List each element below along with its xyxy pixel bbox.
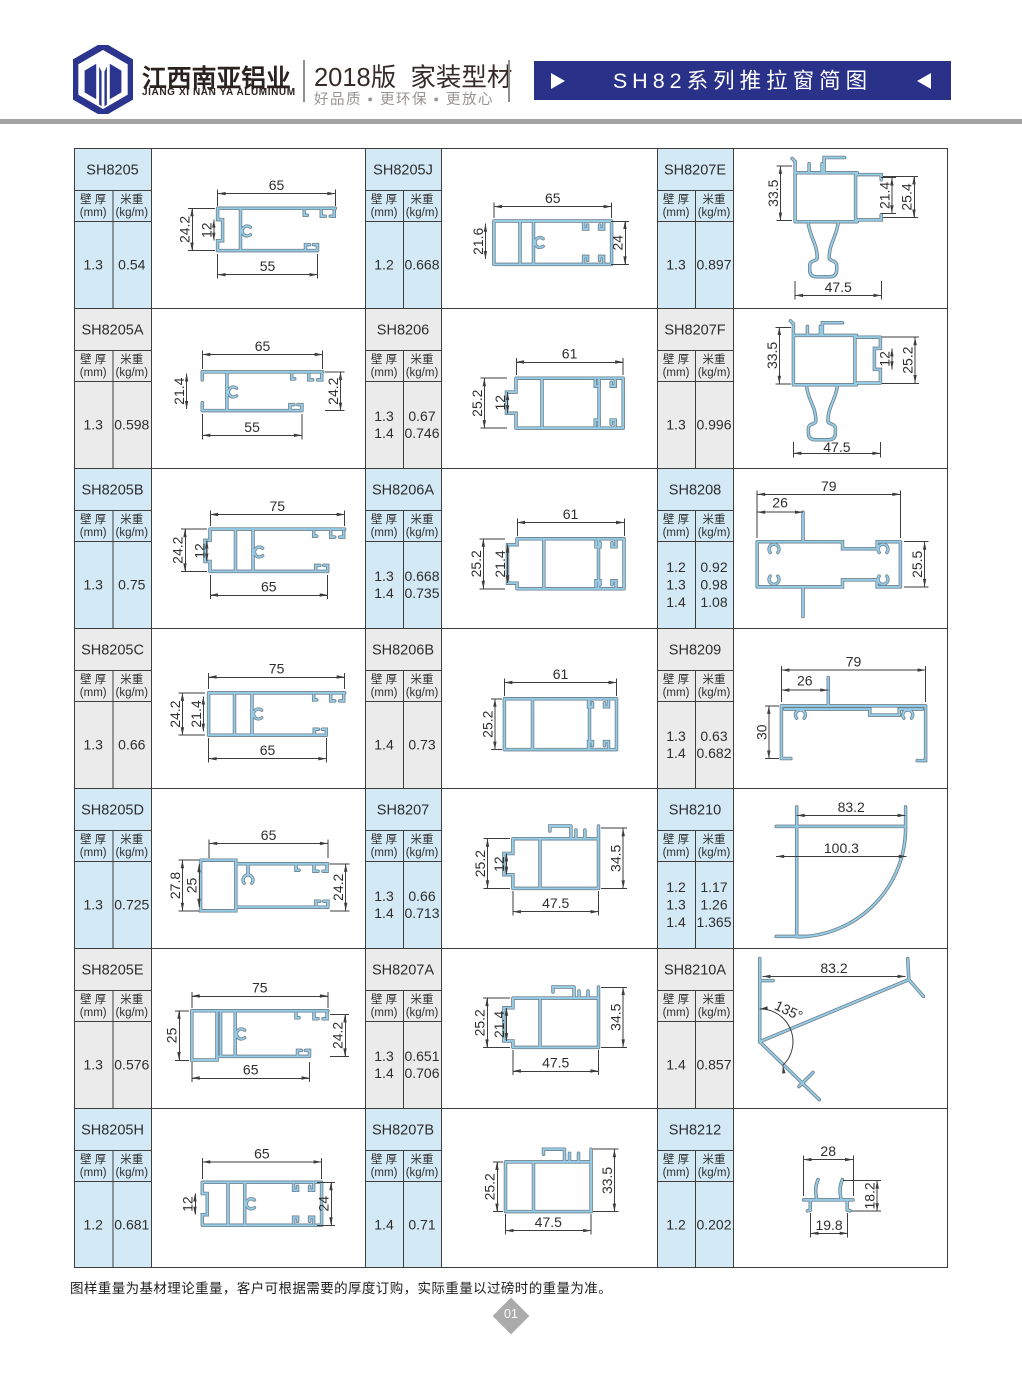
svg-text:12: 12 xyxy=(491,856,507,872)
svg-text:21.4: 21.4 xyxy=(188,700,204,727)
svg-text:25.2: 25.2 xyxy=(900,346,916,373)
svg-text:1.3: 1.3 xyxy=(83,1057,103,1073)
svg-text:0.71: 0.71 xyxy=(408,1217,435,1233)
svg-text:壁 厚: 壁 厚 xyxy=(663,672,689,686)
svg-text:33.5: 33.5 xyxy=(765,179,781,206)
svg-text:1.3: 1.3 xyxy=(374,1048,394,1064)
svg-text:1.2: 1.2 xyxy=(666,879,686,895)
svg-text:0.75: 0.75 xyxy=(118,577,145,593)
svg-text:25.2: 25.2 xyxy=(472,1009,488,1036)
svg-text:21.4: 21.4 xyxy=(492,550,508,577)
svg-text:0.725: 0.725 xyxy=(114,897,149,913)
svg-text:SH8209: SH8209 xyxy=(669,643,721,659)
svg-text:79: 79 xyxy=(846,654,862,670)
svg-text:(mm): (mm) xyxy=(663,687,690,699)
svg-text:1.2: 1.2 xyxy=(666,1217,686,1233)
svg-text:SH8205E: SH8205E xyxy=(81,963,143,979)
svg-text:1.3: 1.3 xyxy=(83,577,103,593)
svg-text:1.4: 1.4 xyxy=(666,1057,686,1073)
svg-text:0.98: 0.98 xyxy=(700,577,727,593)
svg-text:65: 65 xyxy=(261,827,277,843)
svg-text:米重: 米重 xyxy=(411,992,434,1006)
svg-text:1.2: 1.2 xyxy=(666,559,686,575)
svg-text:SH8205J: SH8205J xyxy=(373,163,433,179)
svg-text:25.4: 25.4 xyxy=(899,183,915,210)
svg-text:61: 61 xyxy=(563,506,579,522)
svg-text:0.54: 0.54 xyxy=(118,257,145,273)
svg-text:(mm): (mm) xyxy=(80,1167,107,1179)
svg-text:(kg/m): (kg/m) xyxy=(116,847,149,859)
svg-text:SH8206A: SH8206A xyxy=(372,483,434,499)
svg-text:(kg/m): (kg/m) xyxy=(406,527,439,539)
svg-text:米重: 米重 xyxy=(411,1152,434,1166)
svg-text:壁 厚: 壁 厚 xyxy=(371,832,397,846)
svg-text:0.73: 0.73 xyxy=(408,737,435,753)
svg-text:0.66: 0.66 xyxy=(118,737,145,753)
svg-text:(mm): (mm) xyxy=(371,687,398,699)
svg-text:65: 65 xyxy=(255,338,271,354)
svg-text:1.3: 1.3 xyxy=(666,577,686,593)
svg-text:米重: 米重 xyxy=(120,992,143,1006)
svg-text:SH8207B: SH8207B xyxy=(372,1123,434,1139)
svg-text:壁 厚: 壁 厚 xyxy=(371,992,397,1006)
svg-text:米重: 米重 xyxy=(411,832,434,846)
svg-text:米重: 米重 xyxy=(703,192,726,206)
svg-text:21.6: 21.6 xyxy=(470,227,486,254)
svg-text:壁 厚: 壁 厚 xyxy=(80,832,106,846)
svg-text:25.2: 25.2 xyxy=(482,1173,498,1200)
svg-text:米重: 米重 xyxy=(411,192,434,206)
svg-text:34.5: 34.5 xyxy=(608,1003,624,1030)
svg-text:(kg/m): (kg/m) xyxy=(406,1167,439,1179)
svg-text:47.5: 47.5 xyxy=(823,439,850,455)
svg-text:75: 75 xyxy=(270,498,286,514)
svg-text:(kg/m): (kg/m) xyxy=(116,367,149,379)
svg-text:1.17: 1.17 xyxy=(700,879,727,895)
svg-text:65: 65 xyxy=(254,1145,270,1161)
svg-text:28: 28 xyxy=(820,1143,836,1159)
svg-text:0.681: 0.681 xyxy=(114,1217,149,1233)
svg-text:(kg/m): (kg/m) xyxy=(698,1167,731,1179)
svg-text:壁 厚: 壁 厚 xyxy=(663,352,689,366)
svg-text:壁 厚: 壁 厚 xyxy=(663,512,689,526)
svg-text:1.4: 1.4 xyxy=(666,914,686,930)
svg-text:1.3: 1.3 xyxy=(666,257,686,273)
svg-text:24.2: 24.2 xyxy=(330,873,346,900)
svg-text:1.365: 1.365 xyxy=(696,914,731,930)
svg-text:65: 65 xyxy=(243,1062,259,1078)
svg-text:24: 24 xyxy=(610,235,626,251)
svg-text:75: 75 xyxy=(252,980,268,996)
svg-text:(kg/m): (kg/m) xyxy=(406,367,439,379)
svg-text:壁 厚: 壁 厚 xyxy=(80,192,106,206)
svg-text:24.2: 24.2 xyxy=(170,536,186,563)
svg-text:24.2: 24.2 xyxy=(330,1022,346,1049)
svg-text:0.996: 0.996 xyxy=(696,417,731,433)
svg-text:米重: 米重 xyxy=(120,192,143,206)
svg-text:1.4: 1.4 xyxy=(666,745,686,761)
svg-text:25.2: 25.2 xyxy=(468,550,484,577)
svg-text:壁 厚: 壁 厚 xyxy=(663,192,689,206)
svg-text:米重: 米重 xyxy=(703,672,726,686)
svg-text:12: 12 xyxy=(191,543,207,559)
svg-text:1.4: 1.4 xyxy=(374,585,394,601)
svg-text:135°: 135° xyxy=(772,997,805,1024)
svg-text:47.5: 47.5 xyxy=(825,279,852,295)
svg-text:SH8208: SH8208 xyxy=(669,483,721,499)
svg-text:壁 厚: 壁 厚 xyxy=(663,832,689,846)
svg-text:61: 61 xyxy=(553,666,569,682)
svg-text:米重: 米重 xyxy=(411,672,434,686)
svg-text:SH8205B: SH8205B xyxy=(81,483,143,499)
svg-text:1.3: 1.3 xyxy=(666,728,686,744)
svg-text:26: 26 xyxy=(797,673,813,689)
svg-text:65: 65 xyxy=(545,190,561,206)
svg-text:米重: 米重 xyxy=(411,512,434,526)
svg-text:0.668: 0.668 xyxy=(404,568,439,584)
svg-text:(kg/m): (kg/m) xyxy=(406,1007,439,1019)
svg-text:壁 厚: 壁 厚 xyxy=(371,672,397,686)
svg-text:47.5: 47.5 xyxy=(542,1055,569,1071)
svg-text:(kg/m): (kg/m) xyxy=(116,1167,149,1179)
svg-text:(kg/m): (kg/m) xyxy=(406,847,439,859)
svg-text:(kg/m): (kg/m) xyxy=(698,367,731,379)
svg-text:12: 12 xyxy=(492,395,508,411)
svg-text:(mm): (mm) xyxy=(663,207,690,219)
svg-text:30: 30 xyxy=(753,724,769,740)
svg-text:(mm): (mm) xyxy=(371,1007,398,1019)
svg-text:(mm): (mm) xyxy=(371,527,398,539)
svg-text:壁 厚: 壁 厚 xyxy=(80,992,106,1006)
svg-text:55: 55 xyxy=(260,258,276,274)
svg-text:(mm): (mm) xyxy=(80,527,107,539)
svg-text:12: 12 xyxy=(876,351,892,367)
svg-text:25.5: 25.5 xyxy=(909,550,925,577)
svg-text:12: 12 xyxy=(180,1196,196,1212)
svg-text:1.4: 1.4 xyxy=(374,1217,394,1233)
svg-text:0.713: 0.713 xyxy=(404,905,439,921)
svg-text:26: 26 xyxy=(772,495,788,511)
svg-text:米重: 米重 xyxy=(120,1152,143,1166)
svg-text:壁 厚: 壁 厚 xyxy=(371,352,397,366)
svg-text:100.3: 100.3 xyxy=(824,840,859,856)
svg-text:SH8206: SH8206 xyxy=(377,323,429,339)
svg-text:SH8205C: SH8205C xyxy=(81,643,144,659)
svg-text:1.4: 1.4 xyxy=(374,737,394,753)
svg-text:65: 65 xyxy=(260,742,276,758)
svg-text:0.202: 0.202 xyxy=(696,1217,731,1233)
svg-text:SH8205H: SH8205H xyxy=(81,1123,144,1139)
svg-text:(mm): (mm) xyxy=(371,847,398,859)
svg-text:0.668: 0.668 xyxy=(404,257,439,273)
svg-text:(mm): (mm) xyxy=(80,847,107,859)
svg-text:33.5: 33.5 xyxy=(599,1167,615,1194)
svg-text:1.2: 1.2 xyxy=(83,1217,103,1233)
svg-text:(kg/m): (kg/m) xyxy=(116,1007,149,1019)
svg-text:12: 12 xyxy=(198,222,214,238)
svg-text:0.746: 0.746 xyxy=(404,425,439,441)
svg-text:1.3: 1.3 xyxy=(666,417,686,433)
svg-text:25: 25 xyxy=(164,1027,180,1043)
svg-text:米重: 米重 xyxy=(703,512,726,526)
svg-text:24.2: 24.2 xyxy=(177,216,193,243)
svg-text:0.576: 0.576 xyxy=(114,1057,149,1073)
svg-text:1.26: 1.26 xyxy=(700,897,727,913)
svg-text:SH8210: SH8210 xyxy=(669,803,721,819)
svg-text:34.5: 34.5 xyxy=(608,844,624,871)
svg-text:47.5: 47.5 xyxy=(542,895,569,911)
svg-text:0.651: 0.651 xyxy=(404,1048,439,1064)
svg-text:0.92: 0.92 xyxy=(700,559,727,575)
svg-text:25: 25 xyxy=(184,878,200,894)
svg-text:米重: 米重 xyxy=(120,832,143,846)
svg-text:0.857: 0.857 xyxy=(696,1057,731,1073)
svg-text:米重: 米重 xyxy=(703,352,726,366)
svg-text:(mm): (mm) xyxy=(663,1167,690,1179)
svg-text:(mm): (mm) xyxy=(80,207,107,219)
svg-text:1.4: 1.4 xyxy=(374,1065,394,1081)
svg-text:(kg/m): (kg/m) xyxy=(698,1007,731,1019)
svg-text:SH8205: SH8205 xyxy=(86,163,138,179)
svg-text:25.2: 25.2 xyxy=(469,389,485,416)
svg-text:(kg/m): (kg/m) xyxy=(698,207,731,219)
svg-text:米重: 米重 xyxy=(703,1152,726,1166)
svg-text:米重: 米重 xyxy=(703,992,726,1006)
svg-text:(kg/m): (kg/m) xyxy=(406,207,439,219)
svg-text:24: 24 xyxy=(316,1196,332,1212)
svg-text:18.2: 18.2 xyxy=(862,1182,878,1209)
svg-text:0.897: 0.897 xyxy=(696,257,731,273)
svg-text:83.2: 83.2 xyxy=(820,960,847,976)
svg-text:(kg/m): (kg/m) xyxy=(698,847,731,859)
svg-text:米重: 米重 xyxy=(411,352,434,366)
svg-text:SH8205A: SH8205A xyxy=(81,323,143,339)
svg-text:24.2: 24.2 xyxy=(167,700,183,727)
svg-text:(mm): (mm) xyxy=(663,367,690,379)
svg-text:1.4: 1.4 xyxy=(374,425,394,441)
svg-text:米重: 米重 xyxy=(120,512,143,526)
svg-text:27.8: 27.8 xyxy=(167,872,183,899)
svg-text:SH8207E: SH8207E xyxy=(664,163,726,179)
svg-text:0.67: 0.67 xyxy=(408,408,435,424)
svg-text:1.3: 1.3 xyxy=(666,897,686,913)
svg-text:25.2: 25.2 xyxy=(479,710,495,737)
svg-text:0.735: 0.735 xyxy=(404,585,439,601)
svg-text:1.3: 1.3 xyxy=(83,417,103,433)
svg-text:(kg/m): (kg/m) xyxy=(116,527,149,539)
svg-text:米重: 米重 xyxy=(120,352,143,366)
svg-text:1.3: 1.3 xyxy=(83,897,103,913)
svg-text:19.8: 19.8 xyxy=(815,1217,842,1233)
svg-text:33.5: 33.5 xyxy=(764,342,780,369)
svg-text:24.2: 24.2 xyxy=(325,377,341,404)
svg-text:SH8206B: SH8206B xyxy=(372,643,434,659)
svg-text:0.66: 0.66 xyxy=(408,888,435,904)
svg-text:(kg/m): (kg/m) xyxy=(406,687,439,699)
svg-text:61: 61 xyxy=(562,346,578,362)
svg-text:21.4: 21.4 xyxy=(491,1011,507,1038)
svg-text:1.2: 1.2 xyxy=(374,257,394,273)
svg-text:(kg/m): (kg/m) xyxy=(698,687,731,699)
svg-text:1.3: 1.3 xyxy=(83,737,103,753)
svg-text:SH8205D: SH8205D xyxy=(81,803,144,819)
svg-text:(kg/m): (kg/m) xyxy=(698,527,731,539)
svg-text:1.08: 1.08 xyxy=(700,594,727,610)
svg-text:SH8207F: SH8207F xyxy=(664,323,725,339)
svg-text:(mm): (mm) xyxy=(80,687,107,699)
svg-text:(mm): (mm) xyxy=(663,1007,690,1019)
svg-text:壁 厚: 壁 厚 xyxy=(371,192,397,206)
svg-text:1.3: 1.3 xyxy=(374,888,394,904)
svg-text:壁 厚: 壁 厚 xyxy=(663,992,689,1006)
svg-text:0.598: 0.598 xyxy=(114,417,149,433)
svg-text:79: 79 xyxy=(821,478,837,494)
svg-text:SH8210A: SH8210A xyxy=(664,963,726,979)
svg-text:1.4: 1.4 xyxy=(374,905,394,921)
svg-text:SH8207: SH8207 xyxy=(377,803,429,819)
svg-text:(mm): (mm) xyxy=(371,207,398,219)
svg-text:壁 厚: 壁 厚 xyxy=(80,352,106,366)
svg-text:21.4: 21.4 xyxy=(876,182,892,209)
svg-text:(mm): (mm) xyxy=(663,847,690,859)
svg-text:1.3: 1.3 xyxy=(374,568,394,584)
svg-text:65: 65 xyxy=(261,579,277,595)
svg-text:25.2: 25.2 xyxy=(472,850,488,877)
svg-text:21.4: 21.4 xyxy=(171,377,187,404)
svg-text:(mm): (mm) xyxy=(663,527,690,539)
svg-text:(mm): (mm) xyxy=(371,367,398,379)
svg-text:米重: 米重 xyxy=(120,672,143,686)
svg-text:0.706: 0.706 xyxy=(404,1065,439,1081)
svg-text:壁 厚: 壁 厚 xyxy=(80,512,106,526)
svg-text:壁 厚: 壁 厚 xyxy=(371,1152,397,1166)
svg-text:65: 65 xyxy=(269,177,285,193)
svg-text:47.5: 47.5 xyxy=(535,1214,562,1230)
svg-text:(mm): (mm) xyxy=(371,1167,398,1179)
svg-text:SH8212: SH8212 xyxy=(669,1123,721,1139)
svg-text:75: 75 xyxy=(269,661,285,677)
svg-text:55: 55 xyxy=(244,419,260,435)
svg-text:(kg/m): (kg/m) xyxy=(116,207,149,219)
svg-text:(mm): (mm) xyxy=(80,367,107,379)
svg-text:1.3: 1.3 xyxy=(374,408,394,424)
svg-text:(mm): (mm) xyxy=(80,1007,107,1019)
svg-text:壁 厚: 壁 厚 xyxy=(371,512,397,526)
svg-text:1.3: 1.3 xyxy=(83,257,103,273)
svg-text:(kg/m): (kg/m) xyxy=(116,687,149,699)
svg-text:SH8207A: SH8207A xyxy=(372,963,434,979)
svg-text:壁 厚: 壁 厚 xyxy=(663,1152,689,1166)
svg-text:83.2: 83.2 xyxy=(838,799,865,815)
svg-text:壁 厚: 壁 厚 xyxy=(80,672,106,686)
svg-text:壁 厚: 壁 厚 xyxy=(80,1152,106,1166)
svg-text:1.4: 1.4 xyxy=(666,594,686,610)
svg-text:0.682: 0.682 xyxy=(696,745,731,761)
svg-text:0.63: 0.63 xyxy=(700,728,727,744)
svg-text:米重: 米重 xyxy=(703,832,726,846)
